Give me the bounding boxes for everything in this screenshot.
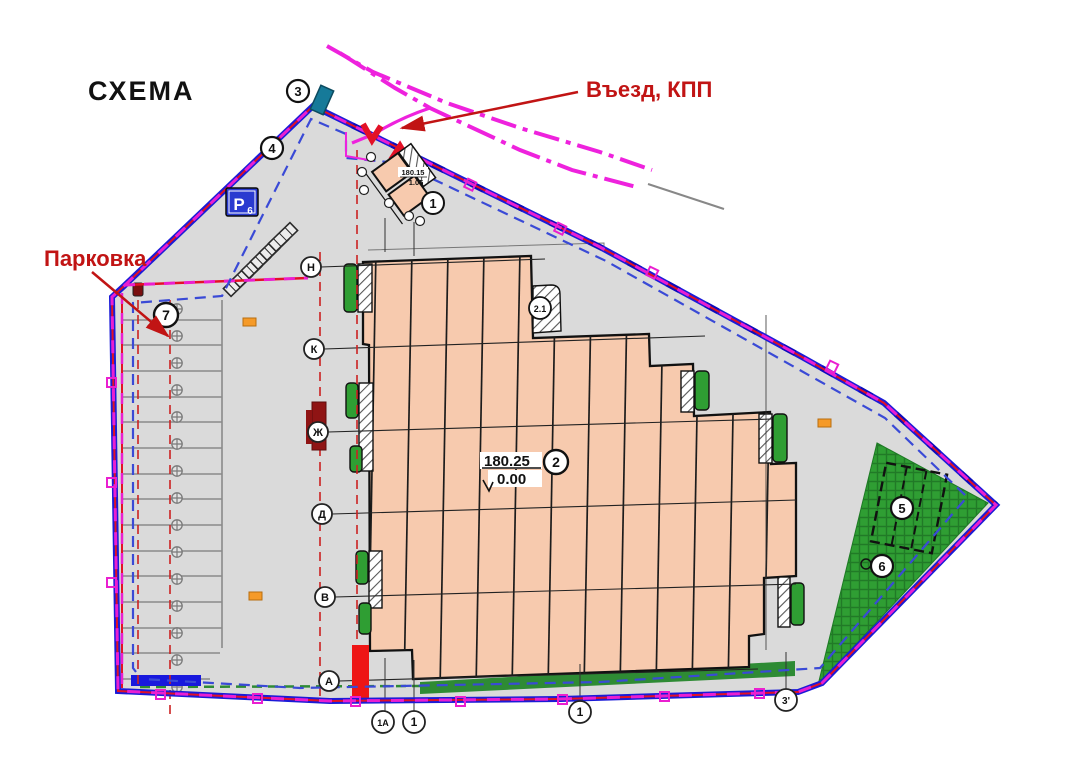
site-plan-drawing: 180.15 1.05 1 Н К Ж Д В А 1А 1 1 3' 3 4 … [0,0,1072,768]
parking-sign: Р 6 [226,188,258,217]
svg-text:7: 7 [162,307,170,323]
parking-label: Парковка [44,246,147,271]
svg-text:4: 4 [268,141,276,156]
red-gate-bar [352,645,369,702]
checkpoint-elevation-rel: 1.05 [409,178,424,187]
gate-post-marker [310,85,333,114]
entrance-annotation: Въезд, КПП [402,77,712,128]
svg-text:6: 6 [878,559,885,574]
road-edge-gray [648,184,724,209]
svg-text:3': 3' [782,696,790,707]
building-number: 2 [552,454,560,470]
building-elevation-rel: 0.00 [497,471,526,488]
svg-text:1: 1 [577,705,584,719]
svg-text:1А: 1А [377,718,389,728]
parking-sign-index: 6 [247,206,253,217]
svg-text:3: 3 [294,84,301,99]
blue-structure-bar [131,675,201,686]
svg-text:К: К [311,344,318,356]
svg-text:В: В [321,592,329,604]
svg-text:Ж: Ж [312,427,323,439]
checkpoint-number: 1 [429,196,436,211]
site-plan-page: 180.15 1.05 1 Н К Ж Д В А 1А 1 1 3' 3 4 … [0,0,1072,768]
building-notch-number: 2.1 [534,304,547,314]
svg-text:Д: Д [318,509,326,521]
entrance-label: Въезд, КПП [586,77,712,102]
checkpoint-elevation-abs: 180.15 [402,168,425,177]
svg-text:А: А [325,676,333,688]
tree-symbols [172,304,182,692]
page-title: СХЕМА [88,76,194,106]
parking-sign-letter: Р [233,195,244,214]
svg-text:1: 1 [411,715,418,729]
svg-text:Н: Н [307,262,315,274]
svg-text:5: 5 [898,501,905,516]
